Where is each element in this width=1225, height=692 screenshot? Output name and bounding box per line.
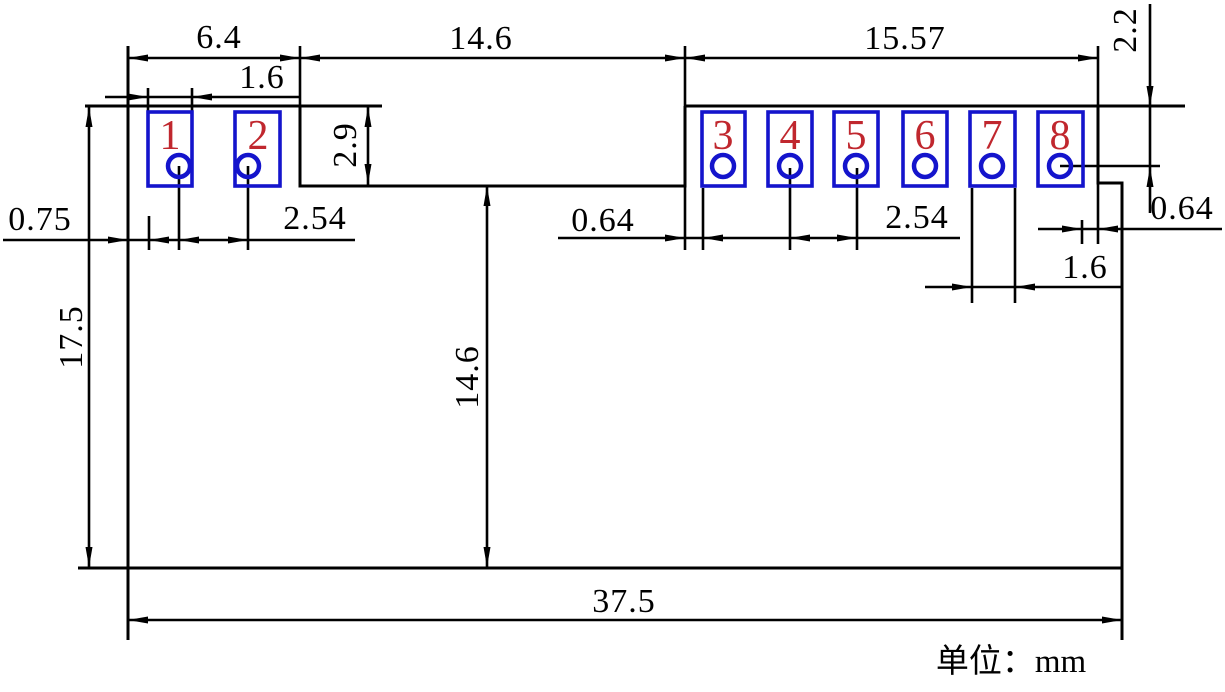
dim-left-pad-width: 1.6: [239, 59, 285, 96]
dim-board-width: 37.5: [592, 583, 656, 620]
pad-2-number: 2: [248, 113, 269, 159]
dim-right-pad-width: 1.6: [1062, 249, 1108, 286]
pad-8-number: 8: [1050, 113, 1071, 159]
pad-numbers-group: 1 2 3 4 5 6 7 8: [160, 113, 1071, 159]
dim-right-pitch: 2.54: [885, 199, 949, 236]
pad-7-number: 7: [982, 113, 1003, 159]
pad-6-number: 6: [915, 113, 936, 159]
pad-3-number: 3: [713, 113, 734, 159]
dim-pad-edge-gap: 0.64: [1150, 190, 1214, 227]
pad-5-number: 5: [846, 113, 867, 159]
dimension-lines: [3, 4, 1222, 620]
dim-pad-height: 2.9: [327, 122, 364, 168]
dimension-drawing-canvas: 1 2 3 4 5 6 7 8 6.4 14.6 15.57 1.6 0.75 …: [0, 0, 1225, 692]
dim-notch-width: 14.6: [449, 20, 513, 57]
black-linework: [3, 4, 1222, 640]
dim-left-section-width: 6.4: [196, 19, 242, 56]
unit-label: 单位：mm: [936, 643, 1087, 680]
pads-group: [148, 112, 1083, 186]
dim-notch-depth: 14.6: [449, 345, 486, 409]
dim-hole-top-offset: 2.2: [1107, 7, 1144, 53]
dim-left-margin: 0.75: [8, 201, 72, 238]
dim-notch-pad-gap: 0.64: [571, 202, 635, 239]
pad-1-number: 1: [160, 113, 181, 159]
dim-right-section-width: 15.57: [864, 20, 946, 57]
dim-board-height: 17.5: [53, 305, 90, 369]
pad-4-number: 4: [780, 113, 801, 159]
dimension-labels: 6.4 14.6 15.57 1.6 0.75 2.54 0.64 2.54 0…: [8, 7, 1214, 620]
dim-left-pitch: 2.54: [283, 200, 347, 237]
board-outline: [78, 46, 1185, 640]
drawing-page: 1 2 3 4 5 6 7 8 6.4 14.6 15.57 1.6 0.75 …: [0, 0, 1225, 692]
